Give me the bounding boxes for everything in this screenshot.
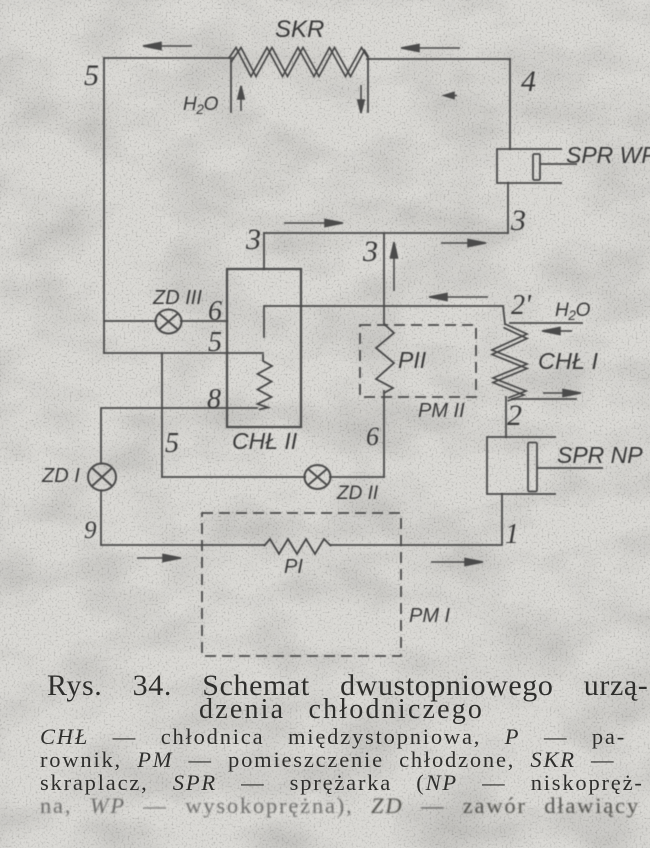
svg-text:dzenia chłodniczego: dzenia chłodniczego xyxy=(199,694,484,725)
svg-text:PM I: PM I xyxy=(409,605,451,627)
svg-text:rownik, PM — pomieszczenie chł: rownik, PM — pomieszczenie chłodzone, SK… xyxy=(40,747,615,772)
svg-text:2: 2 xyxy=(507,399,522,432)
svg-text:SPR WP: SPR WP xyxy=(566,142,650,168)
svg-text:PM II: PM II xyxy=(418,400,465,422)
svg-text:PI: PI xyxy=(284,556,303,578)
svg-text:PII: PII xyxy=(398,347,427,373)
svg-text:CHŁ I: CHŁ I xyxy=(538,348,599,374)
svg-text:CHŁ II: CHŁ II xyxy=(232,428,298,454)
svg-text:3: 3 xyxy=(362,235,378,268)
svg-text:na, WP — wysokoprężna), ZD — z: na, WP — wysokoprężna), ZD — zawór dławi… xyxy=(40,793,640,818)
svg-text:CHŁ — chłodnica międzystopniow: CHŁ — chłodnica międzystopniowa, P — pa- xyxy=(40,724,626,749)
svg-text:SPR NP: SPR NP xyxy=(557,442,643,468)
svg-text:3: 3 xyxy=(510,204,526,237)
svg-text:2': 2' xyxy=(511,290,532,321)
svg-text:SKR: SKR xyxy=(275,16,324,43)
svg-text:8: 8 xyxy=(207,384,221,415)
svg-text:6: 6 xyxy=(208,296,222,327)
svg-text:skraplacz, SPR — sprężarka (NP: skraplacz, SPR — sprężarka (NP — niskopr… xyxy=(40,770,644,795)
svg-text:ZD II: ZD II xyxy=(336,483,379,504)
svg-text:ZD III: ZD III xyxy=(152,287,202,309)
svg-text:3: 3 xyxy=(245,223,261,256)
svg-text:5: 5 xyxy=(165,428,179,459)
svg-text:ZD I: ZD I xyxy=(41,465,80,487)
svg-text:5: 5 xyxy=(208,327,222,358)
svg-text:4: 4 xyxy=(521,65,536,98)
svg-text:5: 5 xyxy=(84,59,99,92)
svg-text:9: 9 xyxy=(84,517,97,544)
svg-text:6: 6 xyxy=(366,422,379,451)
svg-text:1: 1 xyxy=(505,519,519,550)
